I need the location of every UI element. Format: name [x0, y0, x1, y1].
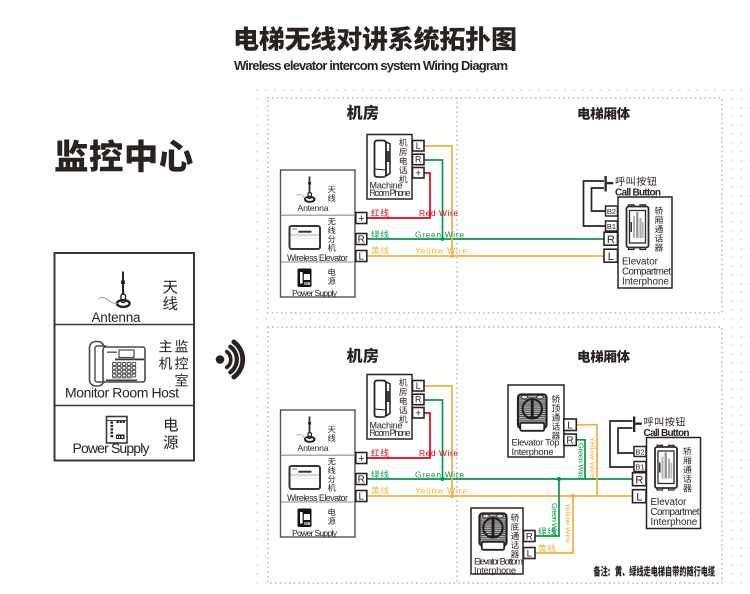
- svg-text:Yellow Wire: Yellow Wire: [415, 246, 467, 256]
- svg-text:Room Phone: Room Phone: [370, 188, 411, 198]
- svg-text:B2: B2: [607, 207, 616, 216]
- svg-text:Yellow Wire: Yellow Wire: [588, 437, 597, 478]
- svg-text:Power Supply: Power Supply: [292, 288, 338, 298]
- svg-text:Green Wire: Green Wire: [415, 470, 464, 480]
- svg-text:R: R: [635, 474, 643, 486]
- svg-text:Antenna: Antenna: [92, 310, 141, 325]
- svg-text:L: L: [359, 252, 365, 263]
- svg-text:Antenna: Antenna: [298, 203, 329, 213]
- svg-text:L: L: [416, 381, 421, 391]
- svg-text:Power Supply: Power Supply: [73, 440, 150, 456]
- svg-text:+: +: [358, 213, 364, 225]
- svg-text:R: R: [358, 235, 365, 246]
- svg-text:B2: B2: [635, 447, 644, 456]
- svg-text:Red Wire: Red Wire: [419, 448, 458, 458]
- svg-text:Interphone: Interphone: [512, 447, 554, 457]
- svg-text:Green Wire: Green Wire: [415, 230, 464, 240]
- svg-text:R: R: [526, 531, 533, 542]
- svg-text:Green Wire: Green Wire: [577, 443, 586, 479]
- svg-text:Green Wire: Green Wire: [550, 503, 559, 537]
- svg-text:R: R: [566, 435, 573, 446]
- svg-text:Yellow Wire: Yellow Wire: [415, 486, 467, 496]
- svg-text:L: L: [636, 491, 642, 503]
- svg-text:Room Phone: Room Phone: [370, 428, 411, 438]
- svg-text:+: +: [415, 167, 421, 179]
- svg-text:Yellow Wire: Yellow Wire: [564, 503, 573, 543]
- svg-text:Interphone: Interphone: [474, 566, 516, 576]
- svg-text:+: +: [415, 407, 421, 419]
- svg-text:R: R: [415, 155, 421, 165]
- svg-text:Monitor Room Host: Monitor Room Host: [65, 385, 179, 401]
- svg-text:Wireless Elevator: Wireless Elevator: [287, 253, 348, 263]
- svg-text:Wireless elevator intercom sys: Wireless elevator intercom system Wiring…: [234, 58, 508, 73]
- svg-text:Antenna: Antenna: [298, 443, 329, 453]
- svg-text:L: L: [608, 251, 614, 263]
- svg-text:B1: B1: [607, 222, 616, 231]
- svg-text:Power Supply: Power Supply: [292, 528, 338, 538]
- svg-text:L: L: [527, 548, 532, 559]
- svg-text:Interphone: Interphone: [651, 517, 698, 528]
- svg-text:Interphone: Interphone: [622, 277, 669, 288]
- svg-text:Red Wire: Red Wire: [419, 208, 458, 218]
- svg-text:L: L: [567, 420, 573, 431]
- svg-text:R: R: [415, 395, 421, 405]
- svg-text:L: L: [359, 492, 365, 503]
- svg-text:L: L: [416, 141, 421, 151]
- svg-text:Wireless Elevator: Wireless Elevator: [287, 493, 348, 503]
- svg-text:R: R: [358, 475, 365, 486]
- svg-text:B1: B1: [635, 462, 644, 471]
- svg-text:+: +: [358, 453, 364, 465]
- svg-text:R: R: [607, 234, 615, 246]
